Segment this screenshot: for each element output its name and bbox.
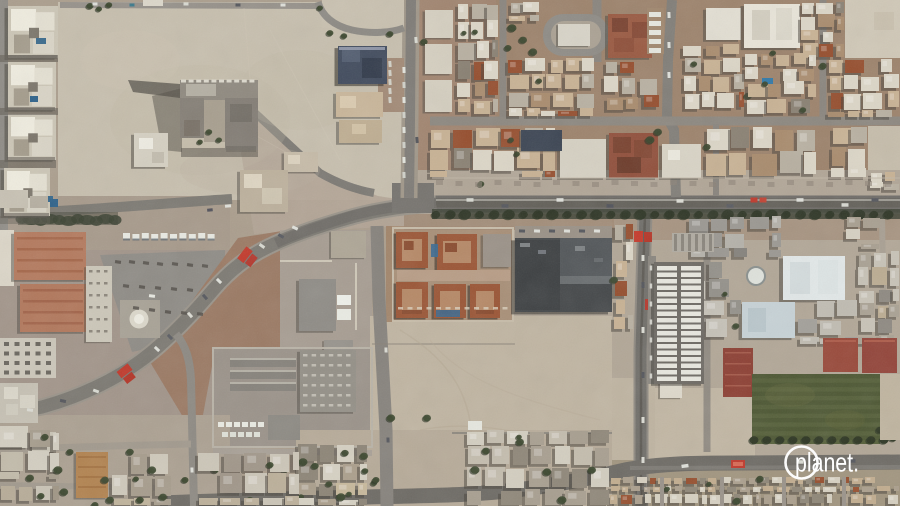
svg-text:planet.: planet.	[795, 448, 859, 478]
